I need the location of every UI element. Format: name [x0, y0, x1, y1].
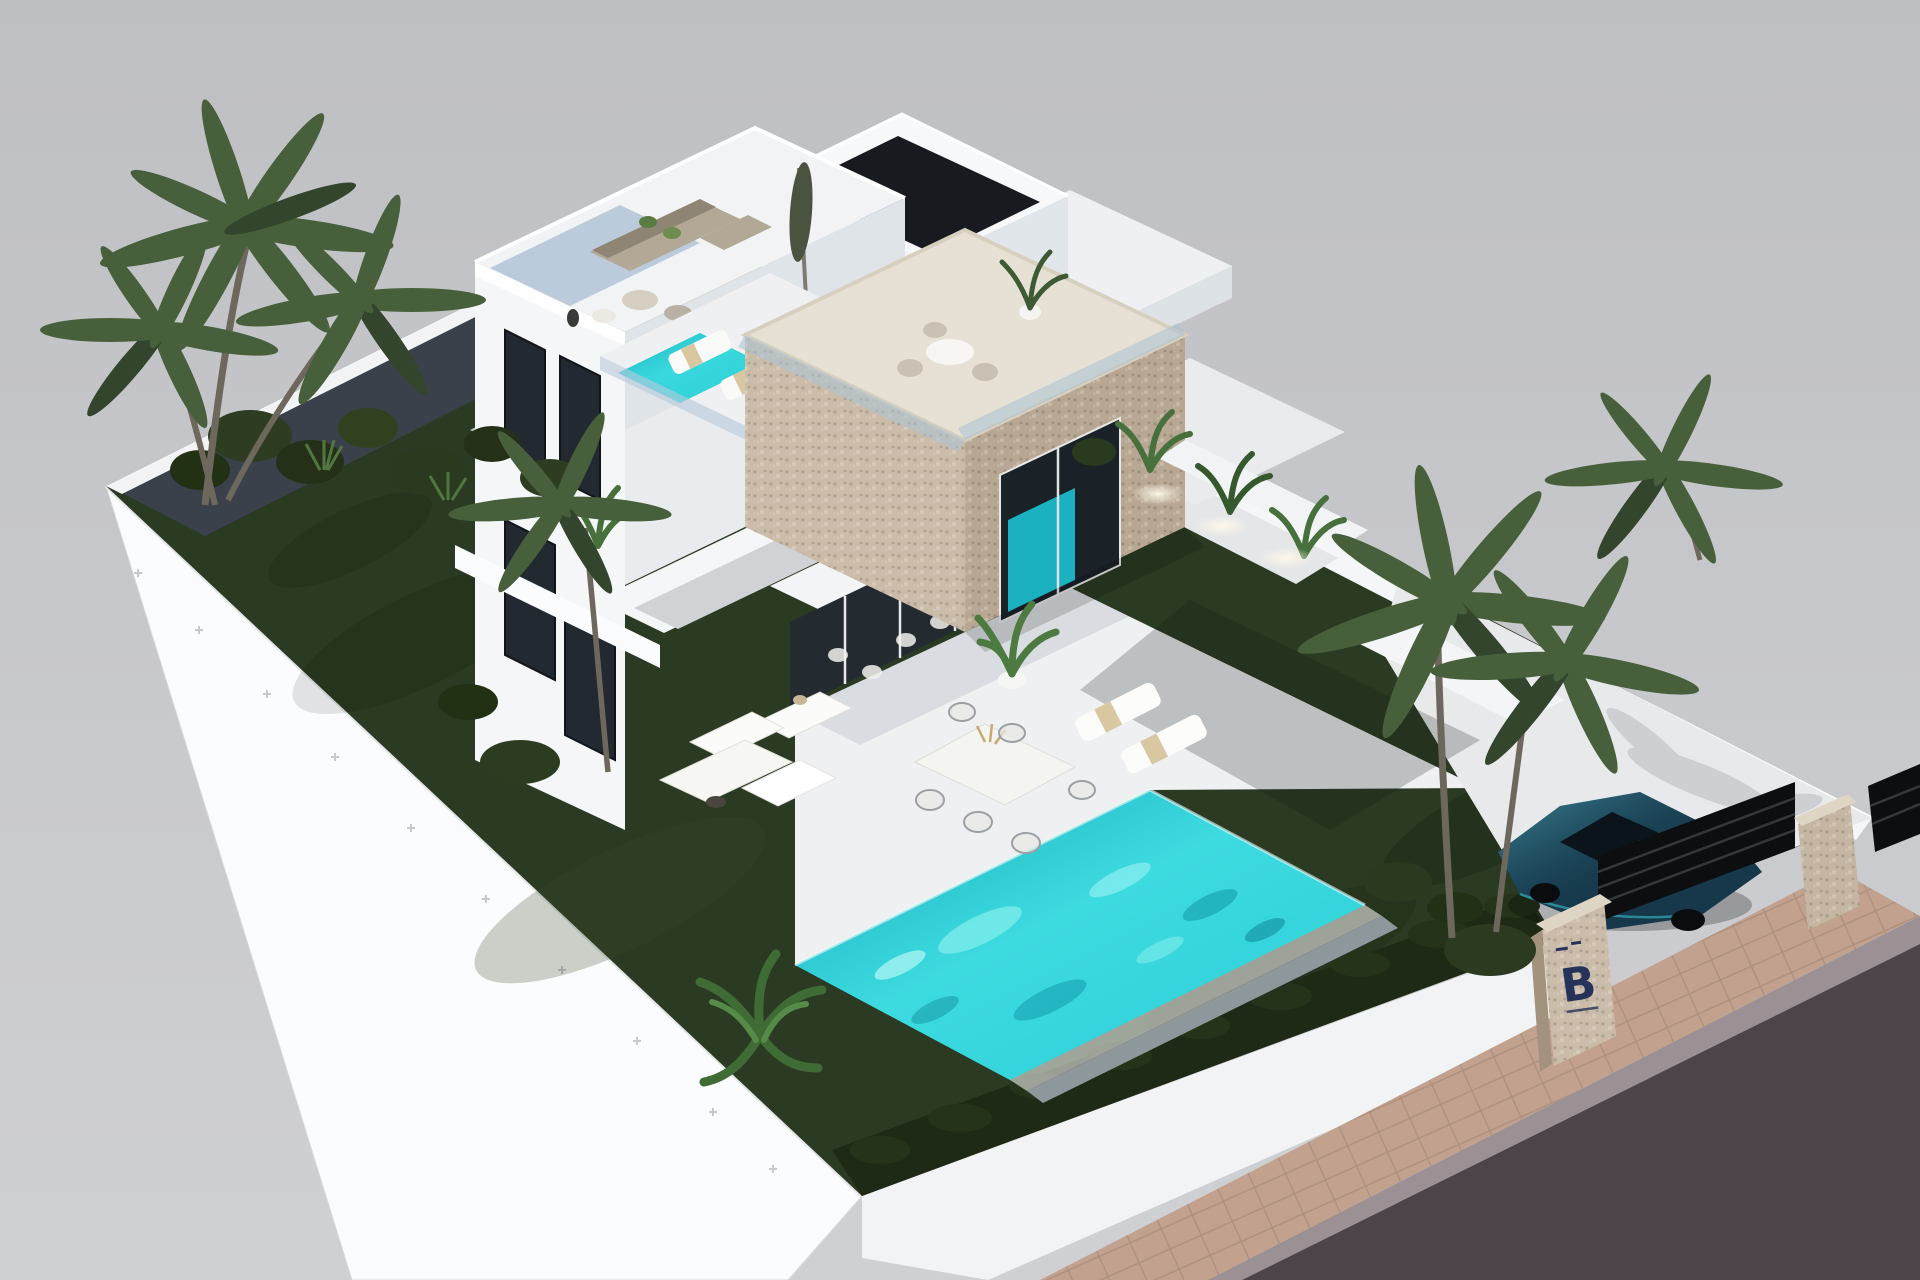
- car-wheel: [1530, 883, 1560, 903]
- villa-render: B: [0, 0, 1920, 1280]
- roof-table: [592, 309, 616, 323]
- bush: [1072, 438, 1116, 466]
- bush: [1427, 892, 1483, 924]
- roof-pouf: [622, 290, 658, 310]
- roof-lantern: [567, 309, 579, 327]
- car-wheel: [1671, 909, 1705, 931]
- bush: [438, 684, 498, 720]
- logo-letter: B: [1557, 955, 1599, 1013]
- cube-terrace-chair: [923, 322, 947, 338]
- roof-pillow: [639, 216, 657, 228]
- bush: [480, 740, 560, 784]
- cube-terrace-table: [926, 339, 974, 365]
- cube-terrace-chair: [897, 359, 923, 377]
- cube-terrace-chair: [972, 363, 998, 381]
- garden-pillow: [793, 695, 807, 705]
- bush: [1364, 862, 1432, 902]
- roof-pillow: [663, 227, 681, 239]
- bush: [1444, 924, 1536, 976]
- fire-bowl: [706, 796, 726, 808]
